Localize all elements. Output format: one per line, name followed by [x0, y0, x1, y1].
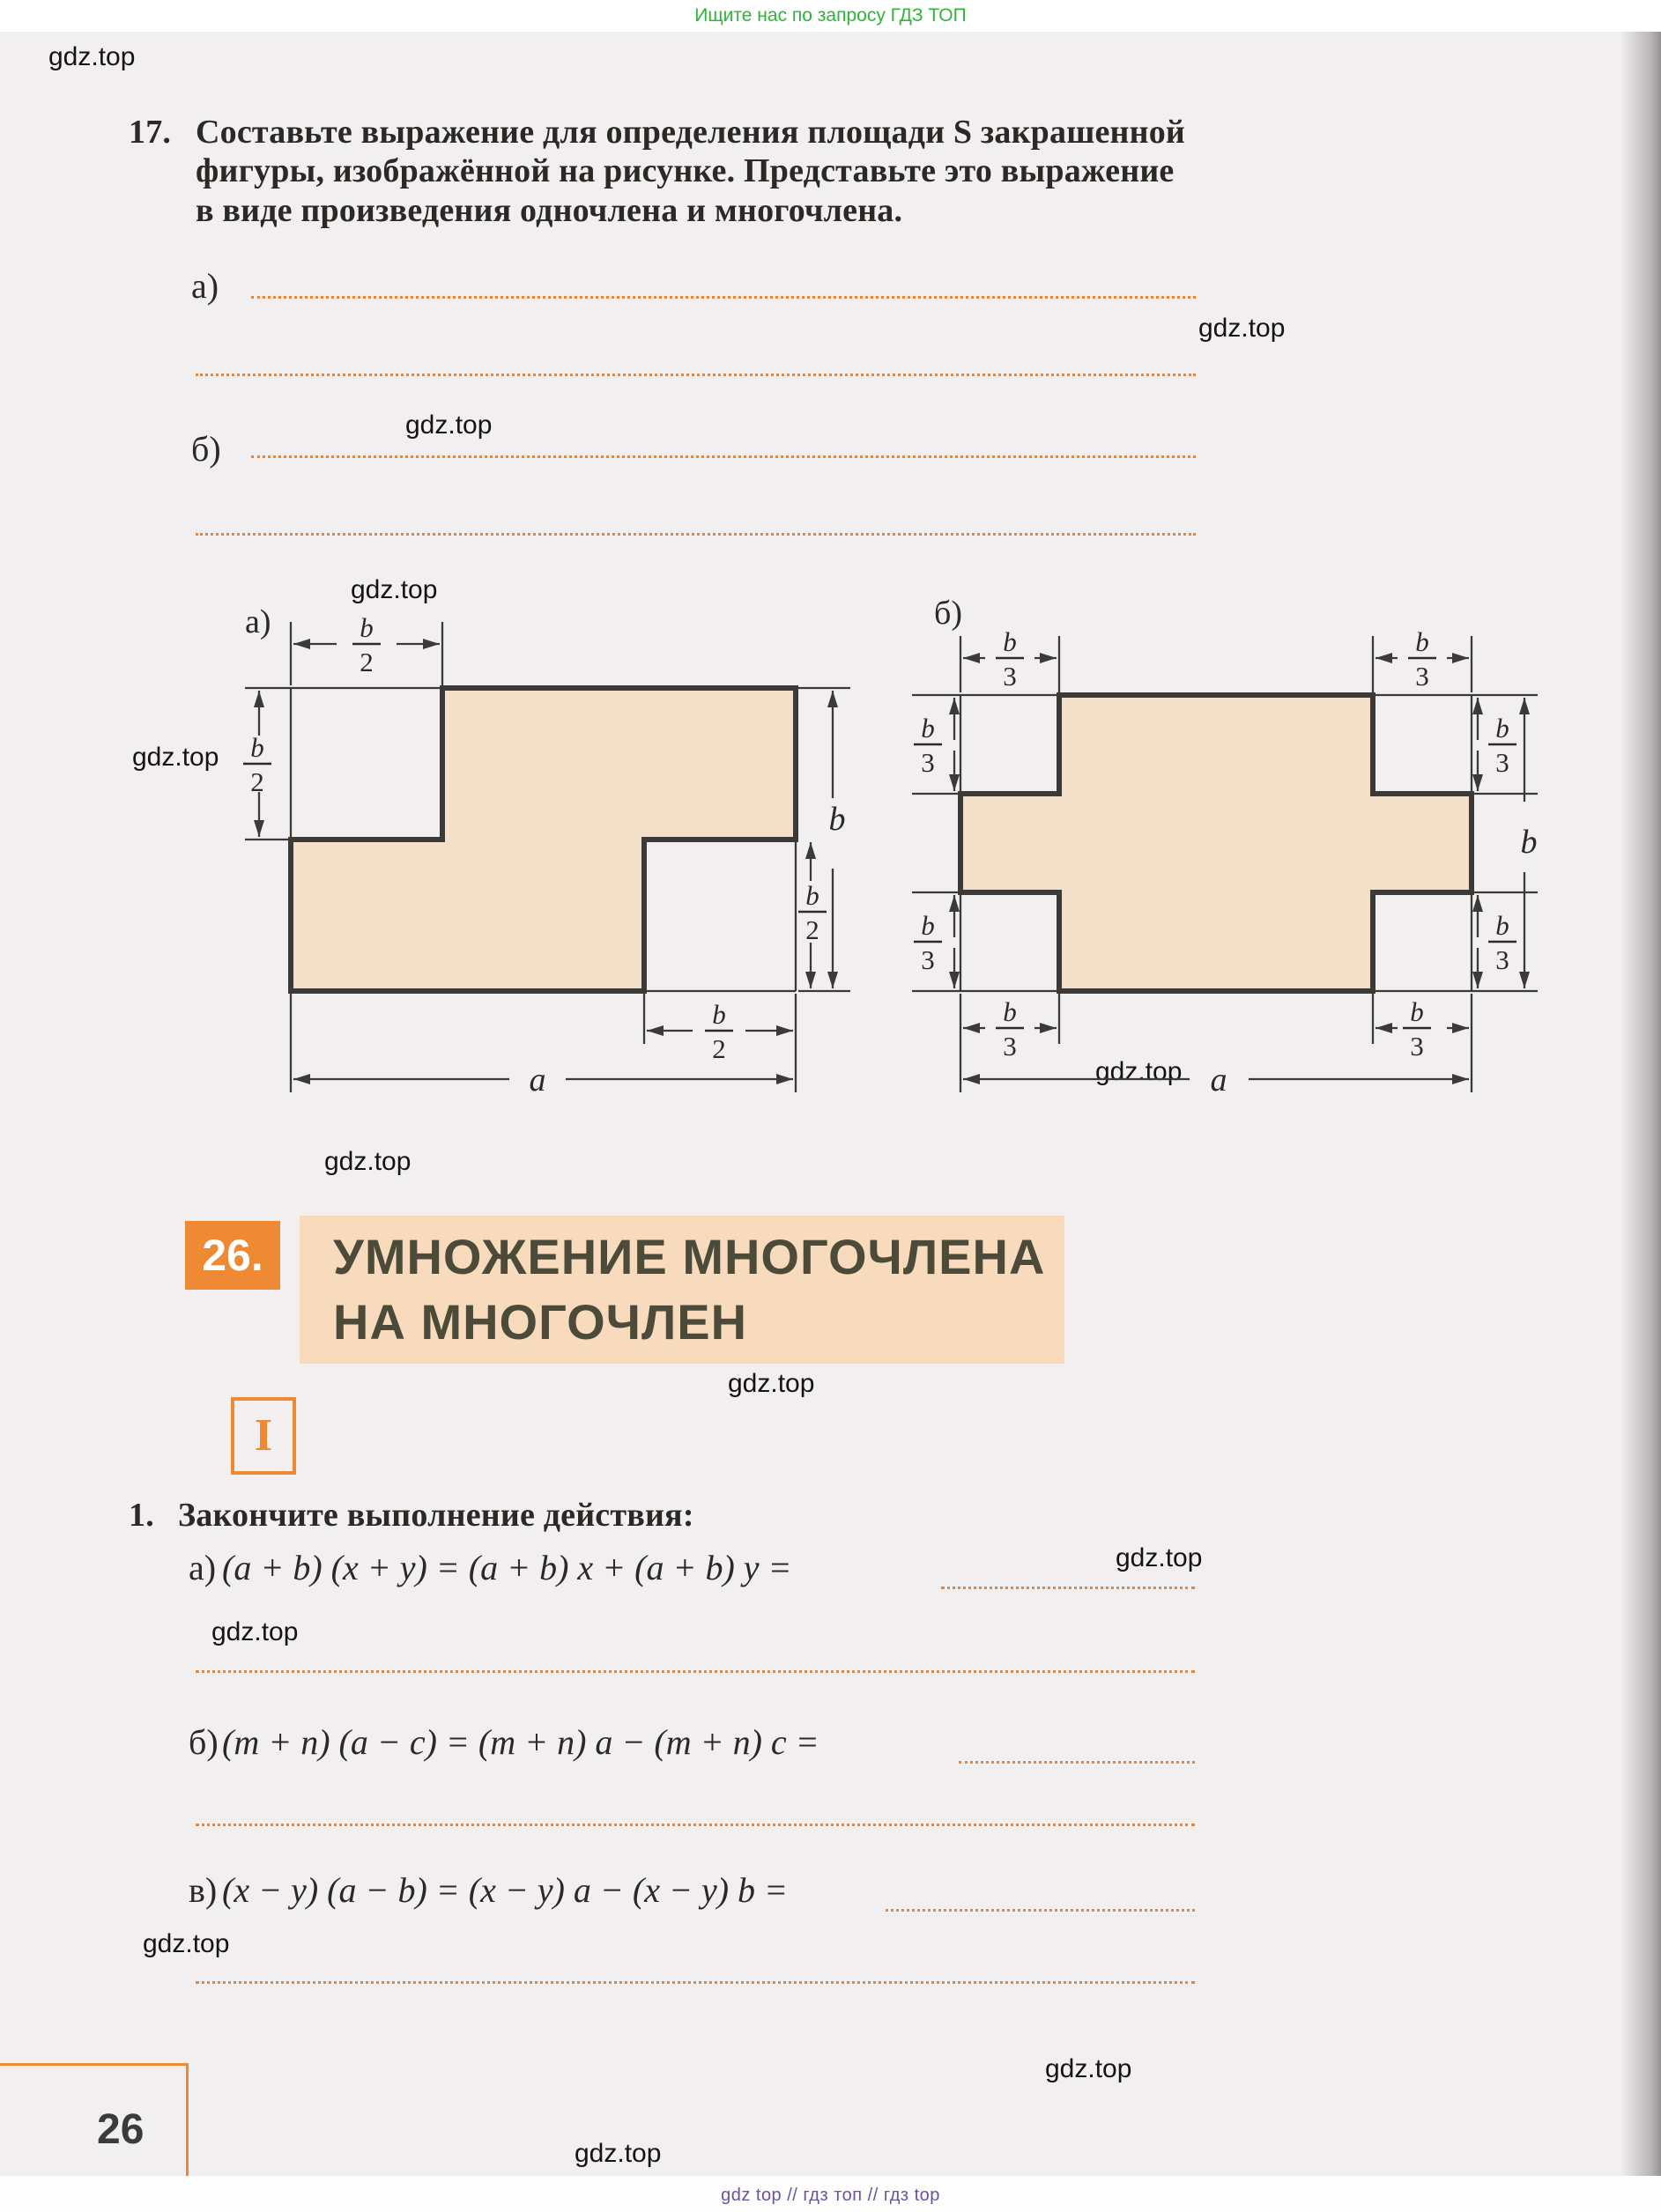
problem1-number: 1.: [129, 1496, 154, 1535]
watermark: gdz.top: [1198, 314, 1285, 344]
dim-label-b-a: b: [829, 801, 846, 838]
dim-fraction-b3-right-lower: b 3: [1488, 910, 1516, 975]
svg-text:b: b: [805, 880, 819, 911]
section-number-badge: 26.: [185, 1221, 280, 1290]
watermark: gdz.top: [405, 411, 492, 440]
equation-dotted-line: [959, 1761, 1195, 1764]
svg-text:3: 3: [921, 944, 935, 975]
dim-label-a-b: a: [1211, 1062, 1227, 1099]
promo-banner-text: Ищите нас по запросу ГДЗ ТОП: [0, 5, 1661, 26]
svg-text:3: 3: [1495, 747, 1509, 778]
svg-text:b: b: [1495, 910, 1509, 941]
dim-fraction-b3-right-upper: b 3: [1488, 713, 1516, 778]
figure-a-diagram: b 2 b 2 b 2 b 2 b a: [238, 564, 890, 1110]
svg-text:2: 2: [360, 647, 374, 677]
dim-fraction-b2-notch: b 2: [798, 880, 827, 945]
equation-dotted-line: [941, 1587, 1195, 1589]
answer-label-a: а): [191, 265, 219, 307]
equation-v: (x − y) (a − b) = (x − y) a − (x − y) b …: [222, 1869, 788, 1911]
dim-fraction-b3-topright: b 3: [1408, 626, 1436, 692]
watermark: gdz.top: [1116, 1543, 1202, 1573]
equation-dotted-line: [886, 1909, 1195, 1912]
answer-dotted-line: [196, 1824, 1195, 1826]
watermark: gdz.top: [1045, 2054, 1131, 2084]
problem1-title: Закончите выполнение действия:: [178, 1496, 694, 1535]
svg-text:b: b: [712, 999, 726, 1030]
dim-label-a-a: a: [530, 1062, 546, 1099]
answer-dotted-line: [251, 296, 1196, 299]
equation-a: (a + b) (x + y) = (a + b) x + (a + b) y …: [222, 1547, 792, 1588]
watermark: gdz.top: [48, 42, 135, 72]
svg-text:3: 3: [1003, 661, 1017, 692]
svg-text:b: b: [360, 612, 374, 643]
answer-dotted-line: [196, 374, 1196, 376]
watermark: gdz.top: [728, 1369, 814, 1399]
shaded-shape-a: [291, 688, 796, 991]
equation-a-label: а): [189, 1547, 216, 1588]
page-number: 26: [97, 2105, 144, 2154]
dim-label-b-b: b: [1521, 824, 1538, 861]
problem17-line1: Составьте выражение для определения площ…: [196, 113, 1185, 152]
svg-text:3: 3: [921, 747, 935, 778]
problem17-line2: фигуры, изображённой на рисунке. Предста…: [196, 152, 1174, 190]
dim-fraction-b3-bottomleft: b 3: [996, 996, 1024, 1062]
svg-text:b: b: [1003, 996, 1017, 1027]
dim-fraction-b3-bottomright: b 3: [1403, 996, 1431, 1062]
answer-dotted-line: [196, 1981, 1195, 1984]
dim-fraction-b2-bottom: b 2: [705, 999, 733, 1064]
watermark: gdz.top: [575, 2139, 661, 2169]
equation-b-label: б): [189, 1721, 219, 1763]
problem17-number: 17.: [129, 113, 171, 152]
svg-text:b: b: [1495, 713, 1509, 743]
watermark: gdz.top: [132, 743, 219, 773]
dim-fraction-b2-top: b 2: [352, 612, 381, 677]
page-edge-shadow: [1620, 32, 1661, 2178]
section-title-line2: НА МНОГОЧЛЕН: [333, 1293, 747, 1350]
workbook-page: Ищите нас по запросу ГДЗ ТОП gdz.top gdz…: [0, 0, 1661, 2212]
watermark: gdz.top: [211, 1617, 298, 1647]
part-marker-box: I: [231, 1397, 296, 1475]
svg-text:b: b: [250, 732, 264, 763]
watermark: gdz.top: [143, 1929, 229, 1959]
equation-b: (m + n) (a − c) = (m + n) a − (m + n) c …: [222, 1721, 819, 1763]
dim-fraction-b3-left-upper: b 3: [914, 713, 942, 778]
figure-b-diagram: b 3 b 3 b 3 b 3 b 3 b 3 b: [899, 564, 1577, 1110]
dim-fraction-b3-left-lower: b 3: [914, 910, 942, 975]
svg-text:2: 2: [712, 1033, 726, 1064]
svg-text:b: b: [921, 713, 935, 743]
answer-dotted-line: [251, 455, 1196, 458]
svg-text:b: b: [1410, 996, 1424, 1027]
svg-text:3: 3: [1415, 661, 1429, 692]
answer-dotted-line: [196, 533, 1196, 536]
equation-v-label: в): [189, 1869, 217, 1911]
svg-text:2: 2: [250, 766, 264, 797]
svg-text:2: 2: [805, 914, 819, 945]
answer-dotted-line: [196, 1670, 1195, 1673]
site-footer-text: gdz top // гдз топ // гдз top: [0, 2186, 1661, 2206]
dim-fraction-b2-left: b 2: [243, 732, 271, 797]
svg-text:b: b: [1415, 626, 1429, 657]
dim-fraction-b3-topleft: b 3: [996, 626, 1024, 692]
section-title-line1: УМНОЖЕНИЕ МНОГОЧЛЕНА: [333, 1228, 1045, 1285]
section-title-banner: УМНОЖЕНИЕ МНОГОЧЛЕНА НА МНОГОЧЛЕН: [300, 1216, 1064, 1364]
problem17-line3: в виде произведения одночлена и многочле…: [196, 191, 902, 230]
shaded-shape-b: [960, 695, 1472, 991]
svg-text:3: 3: [1495, 944, 1509, 975]
svg-text:b: b: [1003, 626, 1017, 657]
svg-text:b: b: [921, 910, 935, 941]
watermark: gdz.top: [324, 1147, 411, 1177]
svg-text:3: 3: [1003, 1031, 1017, 1062]
svg-text:3: 3: [1410, 1031, 1424, 1062]
answer-label-b: б): [191, 428, 221, 470]
